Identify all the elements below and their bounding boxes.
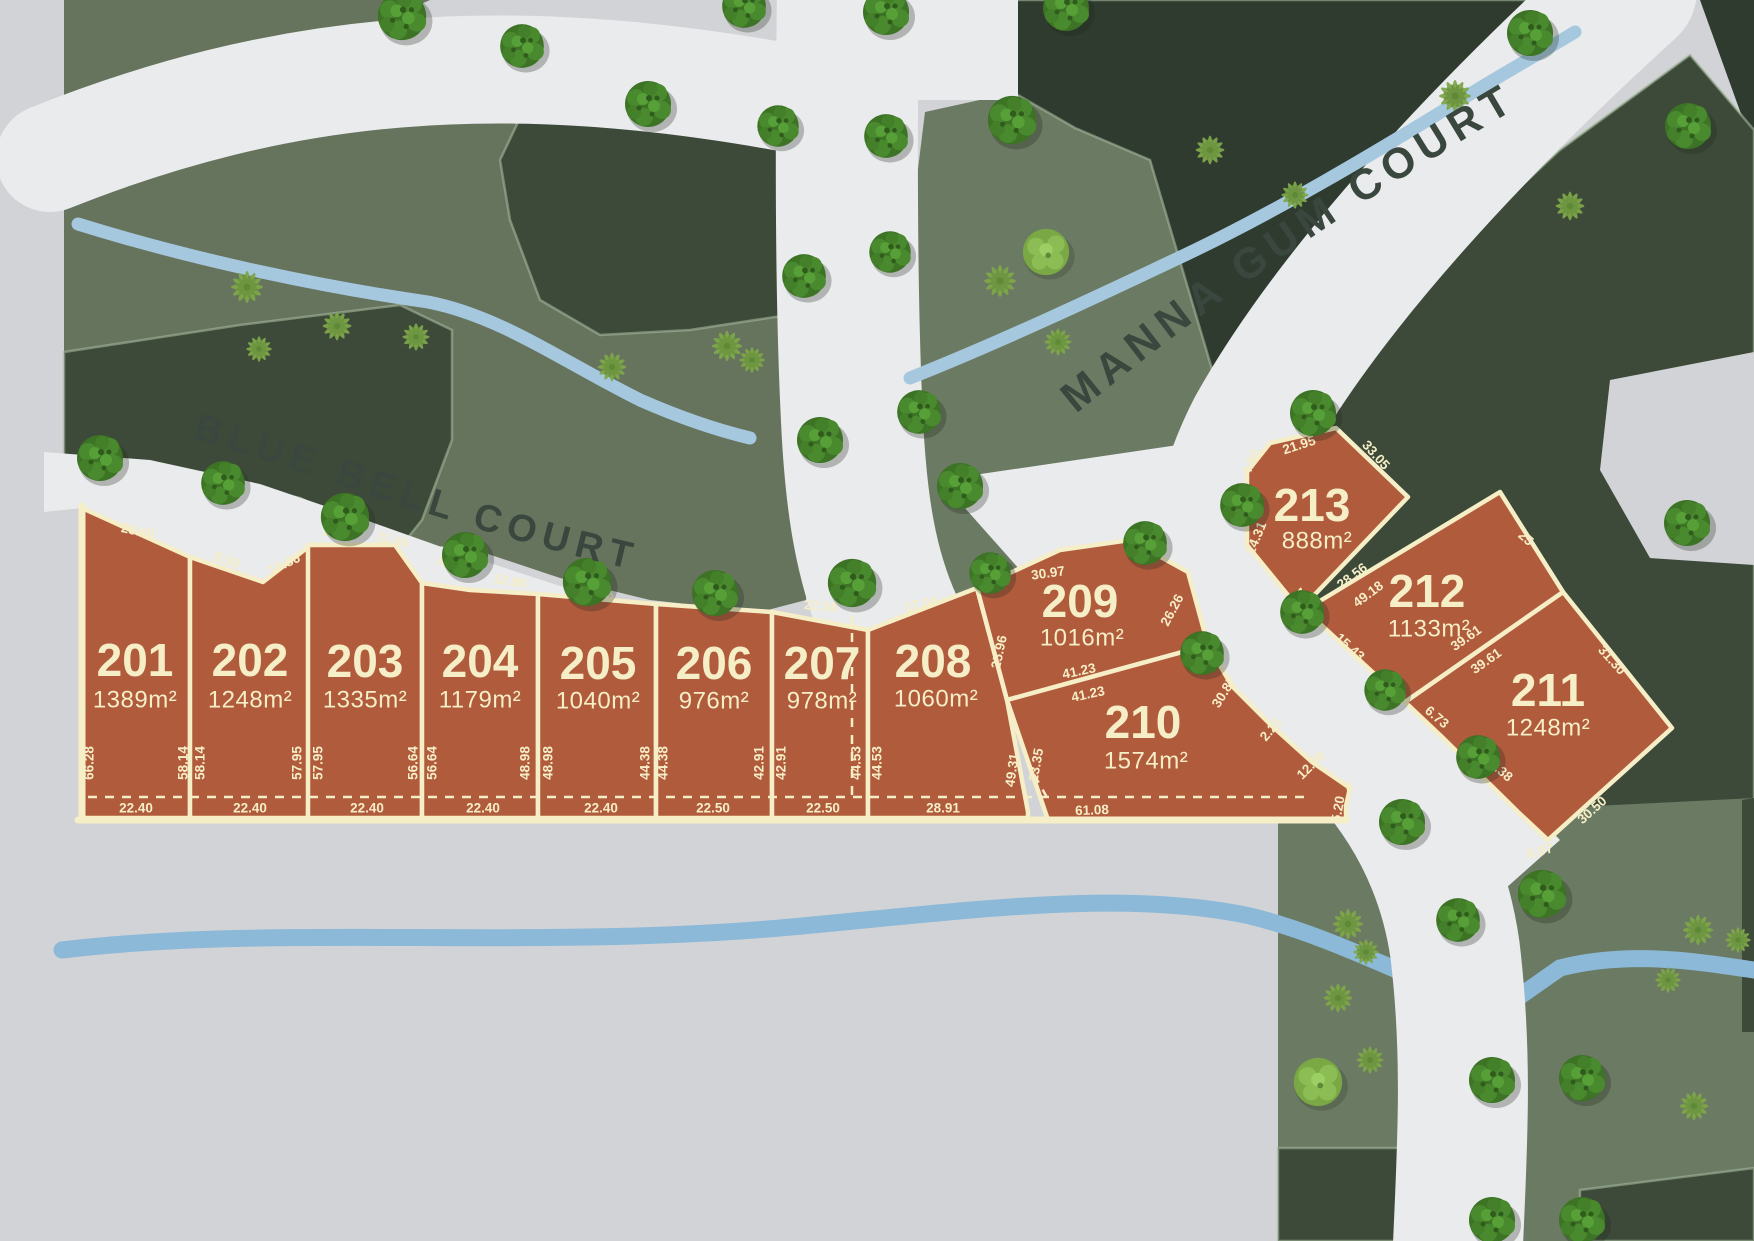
lot-207[interactable]: 207978m² xyxy=(772,612,868,818)
lot-210-area: 1574m² xyxy=(1104,748,1188,775)
lot-206-number: 206 xyxy=(676,637,753,689)
lot-207-number: 207 xyxy=(784,637,861,689)
lot-204[interactable]: 2041179m² xyxy=(422,583,538,818)
reserve-left-b xyxy=(500,115,788,335)
lot-206-dim: 42.91 xyxy=(752,746,767,780)
lot-213-number: 213 xyxy=(1274,479,1351,531)
lot-207-dim: 22.50 xyxy=(806,801,840,816)
lot-202-number: 202 xyxy=(212,634,289,686)
lot-202-dim: 57.95 xyxy=(290,746,305,780)
lot-204-dim: 48.98 xyxy=(518,746,533,780)
lot-206[interactable]: 206976m² xyxy=(656,604,772,818)
lot-201[interactable]: 2011389m² xyxy=(82,508,190,818)
lot-204-area: 1179m² xyxy=(439,687,522,714)
lot-208-dim: 44.53 xyxy=(870,746,885,780)
lot-202-dim: 58.14 xyxy=(193,746,208,780)
lot-203-dim: 56.64 xyxy=(406,746,421,780)
lot-211-number: 211 xyxy=(1511,664,1585,716)
lot-211-area: 1248m² xyxy=(1506,715,1590,742)
reserve-right-sliver xyxy=(1742,798,1754,1032)
lot-206-dim: 22.50 xyxy=(696,801,730,816)
lot-208-area: 1060m² xyxy=(894,686,978,713)
lot-202-dim: 22.40 xyxy=(233,801,267,816)
lot-201-dim: 58.14 xyxy=(176,746,191,780)
lot-201-dim: 22.40 xyxy=(119,801,153,816)
tree-icon xyxy=(722,0,771,33)
lot-207-area: 978m² xyxy=(787,688,858,715)
lot-203-dim: 22.40 xyxy=(350,801,384,816)
lot-201-dim: 66.28 xyxy=(82,746,97,780)
lot-209-number: 209 xyxy=(1042,575,1119,627)
lot-204-dim: 22.40 xyxy=(466,801,500,816)
estate-map-canvas: 2011389m²2021248m²2031335m²2041179m²2051… xyxy=(0,0,1754,1241)
estate-map: 2011389m²2021248m²2031335m²2041179m²2051… xyxy=(0,0,1754,1241)
lot-213-area: 888m² xyxy=(1282,528,1353,555)
lot-203-number: 203 xyxy=(327,635,404,687)
lot-210-number: 210 xyxy=(1105,696,1182,748)
lot-203-dim: 57.95 xyxy=(311,746,326,780)
lot-207-dim: 42.91 xyxy=(774,746,789,780)
lot-207-dim: 44.53 xyxy=(849,746,864,780)
lot-206-dim: 44.38 xyxy=(656,746,671,780)
lot-204-number: 204 xyxy=(442,635,519,687)
lot-205-area: 1040m² xyxy=(556,688,640,715)
lot-201-number: 201 xyxy=(97,634,174,686)
lot-205-number: 205 xyxy=(560,637,637,689)
lot-209-area: 1016m² xyxy=(1040,625,1124,652)
road-top-bar xyxy=(918,0,1018,100)
lot-205-dim: 48.98 xyxy=(541,746,556,780)
lot-210-dim: 61.08 xyxy=(1075,802,1110,818)
lot-206-area: 976m² xyxy=(679,688,750,715)
lot-208-number: 208 xyxy=(895,635,972,687)
lot-204-dim: 56.64 xyxy=(425,746,440,780)
lot-208-dim: 28.91 xyxy=(926,801,960,816)
lot-212-number: 212 xyxy=(1389,565,1466,617)
road-vertical xyxy=(847,0,892,625)
lot-205-dim: 22.40 xyxy=(584,801,618,816)
lot-202-area: 1248m² xyxy=(208,687,292,714)
lot-205[interactable]: 2051040m² xyxy=(538,594,656,818)
lot-203-area: 1335m² xyxy=(323,687,407,714)
lot-201-area: 1389m² xyxy=(93,687,177,714)
lot-205-dim: 44.38 xyxy=(638,746,653,780)
